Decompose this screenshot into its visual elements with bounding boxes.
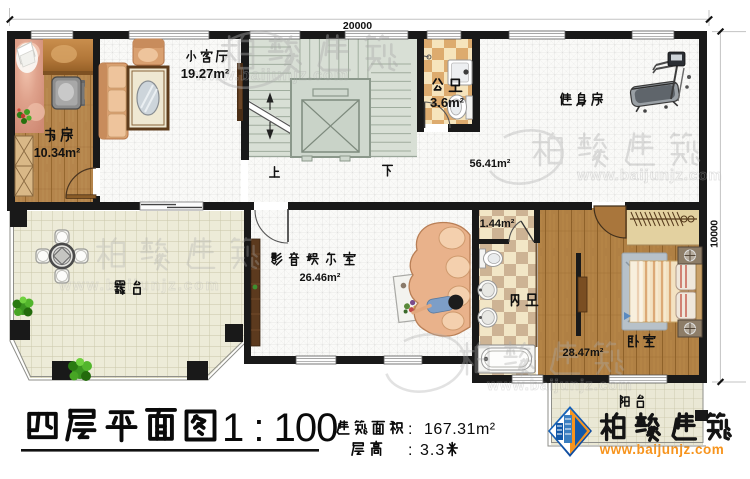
svg-text:20000: 20000 [343,20,372,32]
svg-text:www.baijunjz.com: www.baijunjz.com [599,442,725,457]
svg-text::: : [408,421,412,438]
svg-text:56.41m²: 56.41m² [470,158,511,170]
svg-text::: : [408,442,412,459]
svg-text:167.31m²: 167.31m² [424,421,496,438]
svg-text:1.44m²: 1.44m² [480,218,515,230]
svg-text:10000: 10000 [709,220,721,248]
svg-text:1 : 100: 1 : 100 [222,406,337,450]
svg-text:www.baijunjz.com: www.baijunjz.com [576,167,722,184]
svg-text:3.6m²: 3.6m² [430,95,465,110]
svg-text:28.47m²: 28.47m² [563,347,604,359]
svg-text:10.34m²: 10.34m² [34,146,81,160]
svg-text:3.3: 3.3 [420,442,445,459]
svg-text:www.baijunjz.com: www.baijunjz.com [486,377,632,394]
svg-text:26.46m²: 26.46m² [300,272,341,284]
svg-text:19.27m²: 19.27m² [181,66,230,81]
